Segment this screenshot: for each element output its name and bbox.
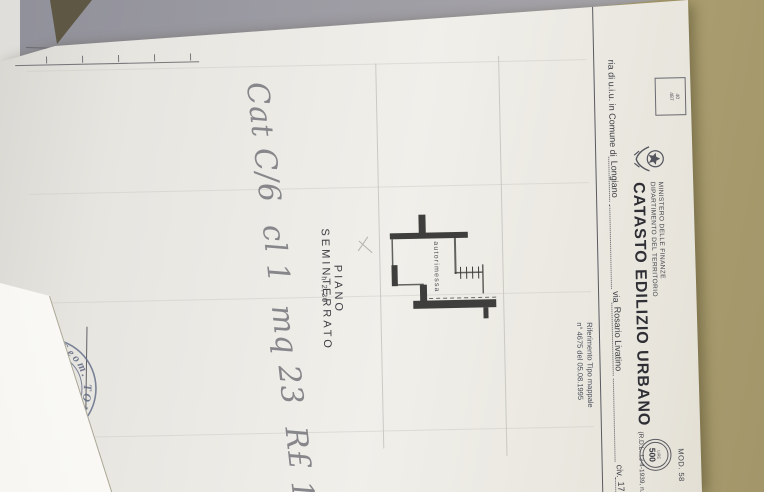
street-value: Rosario Livatino (611, 303, 624, 376)
main-paper: 40 487 MINISTERO DELLE FINANZE DIPARTIME… (0, 0, 764, 492)
via-label: via (611, 291, 621, 303)
room-label: autorimessa (432, 241, 440, 292)
revenue-stamp-circle: LIRE 500 (639, 438, 672, 471)
cadastral-form-rotated: 40 487 MINISTERO DELLE FINANZE DIPARTIME… (0, 2, 700, 492)
corner-box-line2: 487 (668, 78, 675, 114)
italy-coat-of-arms-icon (631, 140, 670, 177)
mod-label: MOD. 58 (676, 448, 686, 482)
left-margin-line (15, 61, 199, 66)
handwritten-note: Cat C/6cl 1mq 23R£ 107=30 (239, 80, 323, 492)
civ-label: civ. (615, 465, 625, 478)
location-prefix: ria di u.i.u. in Comune di (606, 60, 618, 157)
handwritten-category: Cat C/6 (239, 80, 287, 205)
revenue-stamp-currency: LIRE (657, 450, 662, 459)
reference-note-line2: n° 4675 del 05.08.1995 (575, 322, 586, 408)
corner-box-line1: 40 (674, 78, 681, 114)
handwritten-area: mq 23 (264, 303, 310, 407)
handwritten-class: cl 1 (255, 223, 296, 286)
revenue-stamp-value: 500 (649, 448, 657, 462)
pencil-marks (358, 237, 372, 253)
corner-stamp-box: 40 487 (655, 77, 687, 116)
photo-of-cadastral-document: 40 487 MINISTERO DELLE FINANZE DIPARTIME… (0, 0, 764, 492)
location-line: ria di u.i.u. in Comune di Longiano via … (606, 60, 626, 492)
comune-value: Longiano (608, 157, 620, 202)
header-rule (592, 4, 603, 492)
civ-number: 17 (615, 477, 626, 492)
reference-note-line1: Riferimento Tipo mappale (585, 322, 596, 408)
main-paper-wrapper: 40 487 MINISTERO DELLE FINANZE DIPARTIME… (0, 0, 764, 492)
handwritten-rent: R£ 107=30 (277, 425, 332, 492)
floor-plan-drawing: autorimessa (344, 196, 502, 329)
